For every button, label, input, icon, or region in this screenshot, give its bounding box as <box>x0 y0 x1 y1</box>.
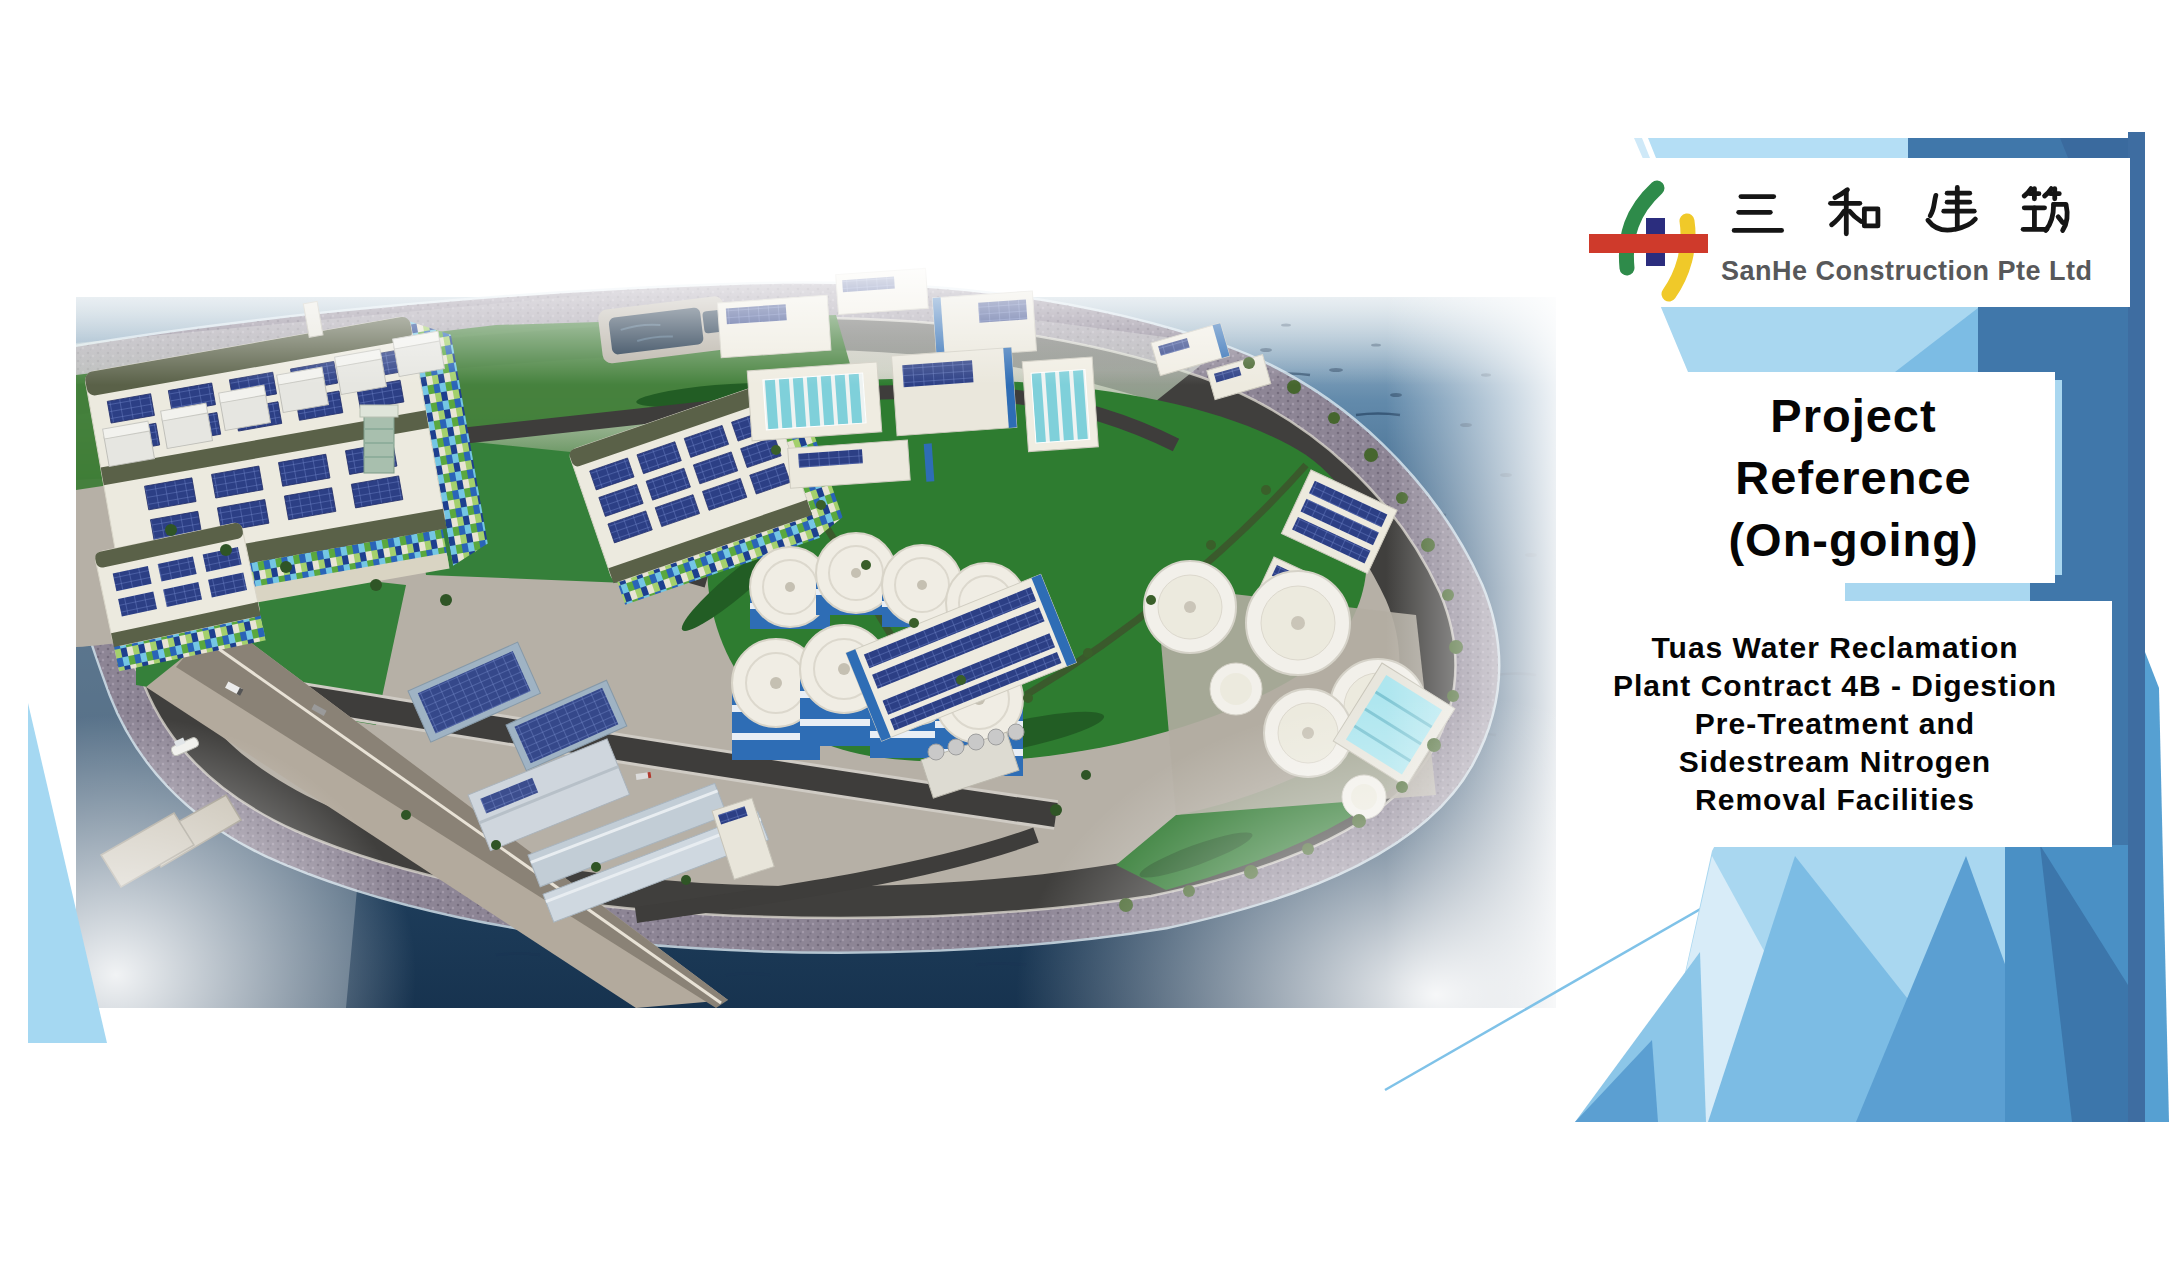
project-description-line-3: Pre-Treatment and <box>1695 705 1975 743</box>
project-description-line-4: Sidestream Nitrogen <box>1679 743 1991 781</box>
facet-tip-b <box>1575 1040 1658 1122</box>
company-name-en: SanHe Construction Pte Ltd <box>1721 256 2113 287</box>
presentation-slide: 三和建筑 SanHe Construction Pte Ltd Project … <box>0 0 2175 1265</box>
company-logo: 三和建筑 SanHe Construction Pte Ltd <box>1585 158 2130 307</box>
facet-right-wedge <box>2145 652 2169 1122</box>
project-description-line-2: Plant Contract 4B - Digestion <box>1613 667 2057 705</box>
title-box: Project Reference (On-going) <box>1652 372 2055 583</box>
project-description: Tuas Water Reclamation Plant Contract 4B… <box>1558 601 2112 847</box>
project-description-line-1: Tuas Water Reclamation <box>1651 629 2018 667</box>
logo-red-bar <box>1589 234 1708 253</box>
page-title-line-2: Reference <box>1735 447 1971 509</box>
company-name-cn-glyphs <box>1723 184 2095 244</box>
company-name-cn: 三和建筑 <box>1585 158 1586 159</box>
facet-vertical-strip <box>2128 132 2145 1122</box>
logo-mark <box>1587 168 1715 304</box>
page-title-line-3: (On-going) <box>1728 509 1978 571</box>
page-title-line-1: Project <box>1770 385 1936 447</box>
project-description-line-5: Removal Facilities <box>1695 781 1975 819</box>
logo-yellow-arc <box>1669 221 1688 294</box>
accent-triangle-left <box>28 703 107 1043</box>
